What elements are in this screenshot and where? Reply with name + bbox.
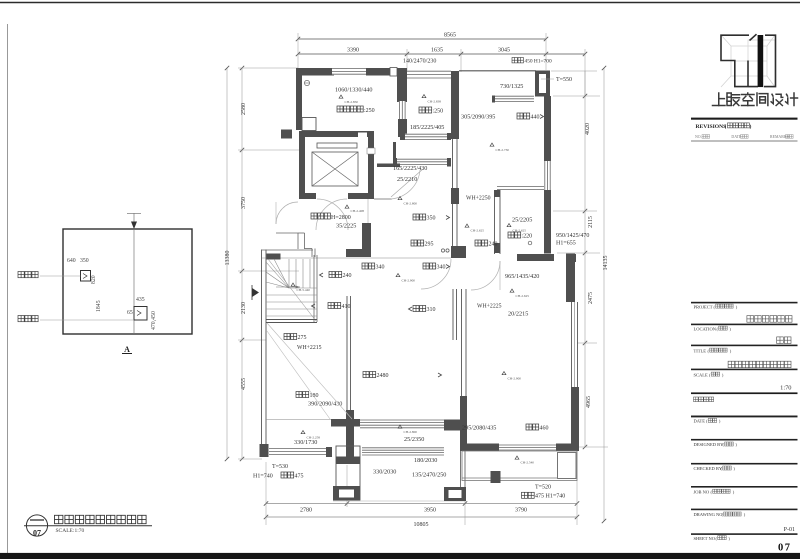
svg-text:REMARKS: REMARKS: [770, 135, 789, 139]
svg-text:65: 65: [127, 310, 133, 316]
svg-text:25/2205: 25/2205: [512, 217, 532, 224]
svg-text:305/2090/395: 305/2090/395: [461, 114, 495, 121]
svg-text:NO.: NO.: [695, 135, 702, 139]
svg-text:20/2215: 20/2215: [508, 311, 528, 318]
svg-text:470,450: 470,450: [151, 311, 157, 330]
svg-text:1:70: 1:70: [780, 385, 791, 392]
svg-text:3950: 3950: [424, 508, 436, 514]
svg-text:CH-2.408: CH-2.408: [351, 209, 365, 213]
svg-text:475: 475: [295, 474, 304, 480]
svg-text:JOB NO: JOB NO: [694, 489, 710, 494]
svg-text:CH-2.838: CH-2.838: [428, 100, 442, 104]
svg-text:135/2470/250: 135/2470/250: [412, 472, 446, 479]
svg-text:A: A: [124, 345, 130, 354]
svg-text:H1=655: H1=655: [556, 241, 576, 247]
svg-text:4020: 4020: [585, 123, 591, 135]
svg-text:435: 435: [136, 297, 145, 303]
svg-text:1060/1330/440: 1060/1330/440: [335, 87, 372, 94]
svg-text:CH-2.900: CH-2.900: [402, 279, 416, 283]
svg-text:REVISIONS: REVISIONS: [696, 124, 727, 130]
svg-text:275: 275: [298, 335, 307, 341]
svg-text:): ): [750, 123, 752, 130]
svg-text:340: 340: [376, 265, 385, 271]
svg-text:DRAWING NO: DRAWING NO: [694, 512, 724, 517]
svg-text:14135: 14135: [603, 256, 609, 271]
svg-text:4555: 4555: [241, 378, 247, 390]
svg-text:DESIGNED BY: DESIGNED BY: [694, 442, 725, 447]
svg-text:T=530: T=530: [272, 464, 288, 470]
svg-text:3390: 3390: [347, 48, 359, 54]
svg-text:WH+2215: WH+2215: [297, 345, 322, 351]
svg-text:13380: 13380: [225, 251, 231, 266]
svg-text:450 H1=700: 450 H1=700: [525, 59, 552, 65]
svg-text:SHEET NO: SHEET NO: [694, 536, 716, 541]
svg-text:H1=740: H1=740: [253, 474, 273, 480]
svg-text:2115: 2115: [588, 216, 594, 228]
svg-text:07: 07: [33, 529, 41, 538]
svg-text:T=550: T=550: [556, 77, 572, 83]
svg-text:3750: 3750: [241, 197, 247, 209]
svg-text:T=520: T=520: [535, 485, 551, 491]
svg-text:DATE: DATE: [694, 419, 706, 424]
svg-text:CH-2.540: CH-2.540: [521, 461, 535, 465]
svg-text:SCALE:1:70: SCALE:1:70: [56, 528, 85, 534]
svg-text:CH-2.625: CH-2.625: [471, 229, 485, 233]
svg-text:2580: 2580: [241, 103, 247, 115]
svg-text:950/1425/470: 950/1425/470: [556, 233, 589, 239]
svg-text:SCALE: SCALE: [694, 372, 709, 377]
svg-text:390/2090/430: 390/2090/430: [308, 401, 342, 408]
svg-text:4965: 4965: [586, 396, 592, 408]
svg-text:185/2225/405: 185/2225/405: [410, 124, 444, 131]
svg-text:35/2225: 35/2225: [336, 223, 356, 230]
svg-text:240: 240: [343, 273, 352, 279]
svg-text:WH+2250: WH+2250: [466, 196, 491, 202]
svg-text:8565: 8565: [444, 33, 456, 39]
svg-text:165/2225/430: 165/2225/430: [393, 165, 427, 172]
svg-text:1635: 1635: [431, 48, 443, 54]
svg-text:H=2800: H=2800: [331, 215, 351, 221]
svg-text:340: 340: [437, 265, 446, 271]
svg-text:25/2210: 25/2210: [397, 176, 417, 183]
svg-text:475 H1=740: 475 H1=740: [535, 494, 565, 500]
svg-text::250: :250: [433, 109, 444, 115]
svg-text:PROJECT: PROJECT: [694, 304, 713, 309]
svg-text:460: 460: [540, 426, 549, 432]
svg-text:CH-5.440: CH-5.440: [297, 288, 311, 292]
svg-text:P-01: P-01: [784, 527, 795, 533]
svg-text:350: 350: [80, 258, 89, 264]
svg-text:TITLE: TITLE: [694, 348, 707, 353]
svg-text:WH+2225: WH+2225: [477, 304, 502, 310]
svg-text:180/2030: 180/2030: [414, 457, 437, 464]
svg-text:410: 410: [342, 304, 351, 310]
svg-text:CH-2.625: CH-2.625: [516, 294, 530, 298]
svg-text:3790: 3790: [515, 508, 527, 514]
svg-text:240: 240: [489, 242, 498, 248]
svg-text:(: (: [725, 123, 727, 130]
svg-text:2780: 2780: [300, 508, 312, 514]
svg-text:LOCATION: LOCATION: [694, 326, 717, 331]
svg-text:10805: 10805: [414, 522, 429, 528]
svg-text::250: :250: [364, 108, 375, 114]
svg-text:2480: 2480: [377, 373, 389, 379]
svg-text:295/2080/435: 295/2080/435: [462, 425, 496, 432]
svg-text:965/1435/420: 965/1435/420: [505, 273, 539, 280]
svg-text:CHECKED BY: CHECKED BY: [694, 466, 723, 471]
svg-text:140/2470/230: 140/2470/230: [403, 59, 436, 65]
svg-text:CH-2.850: CH-2.850: [345, 100, 359, 104]
svg-text:350: 350: [427, 216, 436, 222]
svg-text:CH-2.900: CH-2.900: [508, 377, 522, 381]
svg-text:180: 180: [310, 393, 319, 399]
svg-text:730/1325: 730/1325: [500, 83, 523, 90]
svg-text:440: 440: [531, 115, 540, 121]
svg-text:07: 07: [778, 543, 792, 554]
svg-text:25/2350: 25/2350: [404, 436, 424, 443]
svg-text:CH-2.800: CH-2.800: [404, 202, 418, 206]
svg-text:3045: 3045: [498, 48, 510, 54]
svg-text:640: 640: [67, 258, 76, 264]
svg-text:820: 820: [91, 275, 97, 284]
svg-text::220: :220: [522, 234, 533, 240]
svg-text:CH-2.800: CH-2.800: [404, 430, 418, 434]
svg-text:310: 310: [427, 307, 436, 313]
svg-text:295: 295: [425, 242, 434, 248]
svg-text:330/1730: 330/1730: [294, 439, 317, 446]
svg-text:CH-2.730: CH-2.730: [496, 148, 510, 152]
svg-text:CH-2.258: CH-2.258: [307, 436, 321, 440]
svg-text:330/2030: 330/2030: [373, 469, 396, 476]
svg-text:2475: 2475: [588, 292, 594, 304]
svg-text:1845: 1845: [96, 300, 102, 312]
svg-text:2130: 2130: [241, 302, 247, 314]
